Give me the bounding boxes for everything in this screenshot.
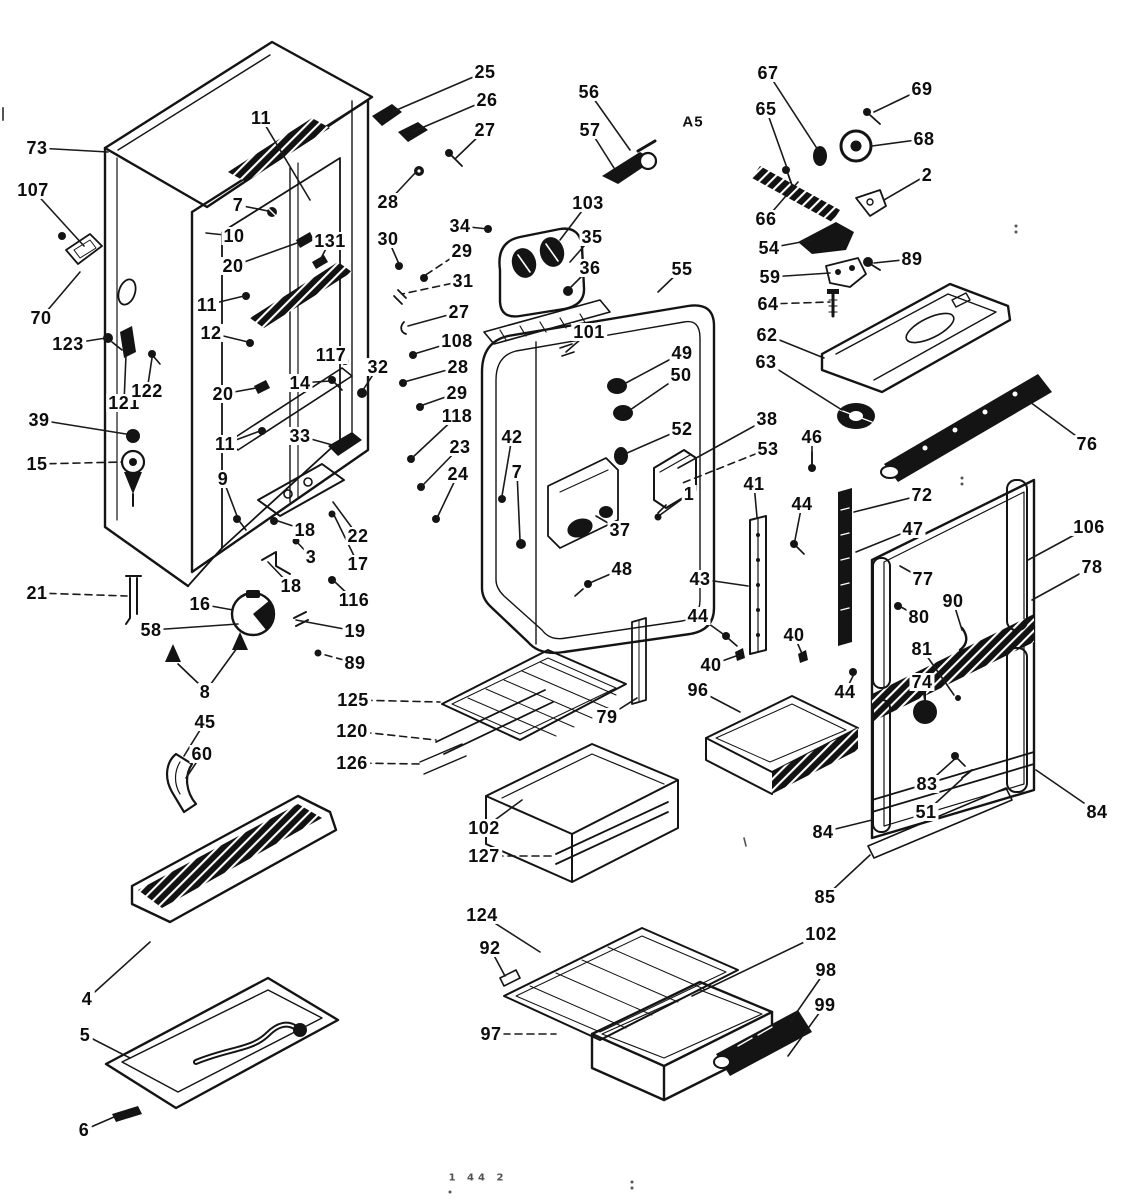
part-label-34: 34: [447, 217, 472, 235]
part-label-64: 64: [755, 295, 780, 313]
diagram-stage: 7310770123121122391521117102013111121173…: [0, 0, 1138, 1200]
part-label-125: 125: [335, 691, 371, 709]
part-label-77: 77: [910, 570, 935, 588]
part-label-26: 26: [474, 91, 499, 109]
part-label-73: 73: [24, 139, 49, 157]
part-label-65: 65: [753, 100, 778, 118]
part-label-40: 40: [698, 656, 723, 674]
part-label-123: 123: [50, 335, 86, 353]
part-label-83: 83: [914, 775, 939, 793]
part-label-79: 79: [594, 708, 619, 726]
part-label-99: 99: [812, 996, 837, 1014]
part-label-78: 78: [1079, 558, 1104, 576]
part-label-117: 117: [314, 346, 349, 364]
part-label-35: 35: [579, 228, 604, 246]
part-label-103: 103: [570, 194, 606, 212]
part-label-107: 107: [15, 181, 51, 199]
labels-layer: 7310770123121122391521117102013111121173…: [0, 0, 1138, 1200]
part-label-53: 53: [755, 440, 780, 458]
part-label-63: 63: [753, 353, 778, 371]
part-label-11: 11: [195, 296, 219, 314]
part-label-122: 122: [129, 382, 165, 400]
part-label-57: 57: [577, 121, 602, 139]
part-label-55: 55: [669, 260, 694, 278]
part-label-84: 84: [1084, 803, 1109, 821]
part-label-14: 14: [287, 374, 312, 392]
part-label-51: 51: [913, 803, 938, 821]
part-label-44: 44: [832, 683, 857, 701]
part-label-38: 38: [754, 410, 779, 428]
part-label-81: 81: [909, 640, 934, 658]
part-label-20: 20: [220, 257, 245, 275]
part-label-127: 127: [466, 847, 502, 865]
part-label-101: 101: [571, 323, 607, 341]
part-label-7: 7: [510, 463, 525, 481]
part-label-62: 62: [754, 326, 779, 344]
part-label-24: 24: [445, 465, 470, 483]
part-label-98: 98: [813, 961, 838, 979]
part-label-92: 92: [477, 939, 502, 957]
part-label-5: 5: [78, 1026, 93, 1044]
part-label-19: 19: [342, 622, 367, 640]
part-label-124: 124: [464, 906, 500, 924]
part-label-131: 131: [312, 232, 348, 250]
part-label-58: 58: [138, 621, 163, 639]
part-label-52: 52: [669, 420, 694, 438]
part-label-18: 18: [292, 521, 317, 539]
part-label-4: 4: [80, 990, 95, 1008]
part-label-23: 23: [447, 438, 472, 456]
part-label-28: 28: [375, 193, 400, 211]
part-label-27: 27: [446, 303, 471, 321]
part-label-1: 1: [682, 485, 697, 503]
part-label-116: 116: [337, 591, 372, 609]
part-label-108: 108: [439, 332, 475, 350]
part-label-45: 45: [192, 713, 217, 731]
part-label-96: 96: [685, 681, 710, 699]
part-label-8: 8: [198, 683, 213, 701]
part-label-11: 11: [213, 435, 237, 453]
part-label-28: 28: [445, 358, 470, 376]
part-label-31: 31: [450, 272, 475, 290]
part-label-21: 21: [24, 584, 49, 602]
part-label-74: 74: [909, 673, 934, 691]
part-label-102: 102: [466, 819, 502, 837]
part-label-33: 33: [287, 427, 312, 445]
part-label-12: 12: [198, 324, 223, 342]
part-label-25: 25: [472, 63, 497, 81]
part-label-69: 69: [909, 80, 934, 98]
part-label-40: 40: [781, 626, 806, 644]
part-label-36: 36: [577, 259, 602, 277]
part-label-39: 39: [26, 411, 51, 429]
part-label-85: 85: [812, 888, 837, 906]
part-label-32: 32: [365, 358, 390, 376]
part-label-10: 10: [221, 227, 246, 245]
part-label-9: 9: [216, 470, 231, 488]
part-label-126: 126: [334, 754, 370, 772]
part-label-46: 46: [799, 428, 824, 446]
part-label-67: 67: [755, 64, 780, 82]
part-label-97: 97: [478, 1025, 503, 1043]
part-label-49: 49: [669, 344, 694, 362]
part-label-89: 89: [342, 654, 367, 672]
part-label-80: 80: [906, 608, 931, 626]
part-label-84: 84: [810, 823, 835, 841]
part-label-18: 18: [278, 577, 303, 595]
part-label-56: 56: [576, 83, 601, 101]
sheet-code: A5: [682, 114, 703, 131]
part-label-76: 76: [1074, 435, 1099, 453]
part-label-59: 59: [757, 268, 782, 286]
part-label-17: 17: [345, 555, 370, 573]
part-label-6: 6: [77, 1121, 92, 1139]
part-label-60: 60: [189, 745, 214, 763]
part-label-118: 118: [440, 407, 475, 425]
part-label-29: 29: [449, 242, 474, 260]
part-label-3: 3: [304, 548, 319, 566]
part-label-90: 90: [940, 592, 965, 610]
part-label-41: 41: [741, 475, 766, 493]
part-label-106: 106: [1071, 518, 1107, 536]
part-label-68: 68: [911, 130, 936, 148]
part-label-70: 70: [28, 309, 53, 327]
part-label-47: 47: [900, 520, 925, 538]
part-label-22: 22: [345, 527, 370, 545]
part-label-120: 120: [334, 722, 370, 740]
part-label-66: 66: [753, 210, 778, 228]
part-label-11: 11: [249, 109, 273, 127]
part-label-89: 89: [899, 250, 924, 268]
part-label-54: 54: [756, 239, 781, 257]
part-label-7: 7: [231, 196, 246, 214]
part-label-2: 2: [920, 166, 935, 184]
part-label-44: 44: [789, 495, 814, 513]
part-label-44: 44: [685, 607, 710, 625]
part-label-27: 27: [472, 121, 497, 139]
part-label-43: 43: [687, 570, 712, 588]
part-label-102: 102: [803, 925, 839, 943]
part-label-37: 37: [607, 521, 632, 539]
footer-note: 1 44 2: [449, 1173, 508, 1184]
part-label-72: 72: [909, 486, 934, 504]
part-label-50: 50: [668, 366, 693, 384]
part-label-16: 16: [187, 595, 212, 613]
part-label-42: 42: [499, 428, 524, 446]
part-label-15: 15: [24, 455, 49, 473]
part-label-30: 30: [375, 230, 400, 248]
part-label-48: 48: [609, 560, 634, 578]
part-label-29: 29: [444, 384, 469, 402]
part-label-20: 20: [210, 385, 235, 403]
